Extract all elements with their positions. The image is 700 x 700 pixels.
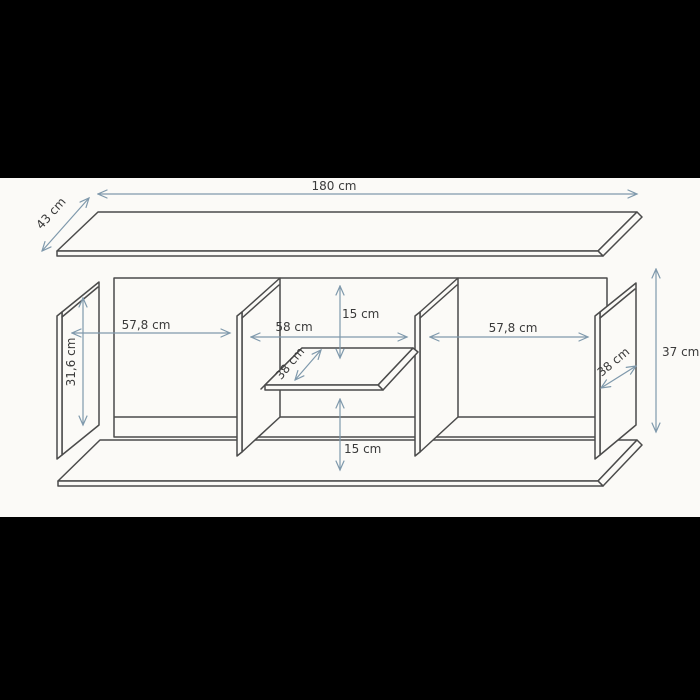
dim-label-lower-clearance: 15 cm <box>344 442 381 456</box>
top-panel <box>57 212 642 256</box>
dim-label-upper-clearance: 15 cm <box>342 307 379 321</box>
dim-label-right-section: 57,8 cm <box>489 321 538 335</box>
dim-label-center-section: 58 cm <box>275 320 312 334</box>
dim-label-overall-height: 37 cm <box>662 345 699 359</box>
furniture-diagram: 180 cm 43 cm 57,8 cm 58 cm 57,8 cm 31,6 … <box>0 0 700 700</box>
dim-label-side-height: 31,6 cm <box>64 338 78 387</box>
dim-label-left-section: 57,8 cm <box>122 318 171 332</box>
screenshot-canvas: 180 cm 43 cm 57,8 cm 58 cm 57,8 cm 31,6 … <box>0 0 700 700</box>
dim-label-top-width: 180 cm <box>311 179 356 193</box>
